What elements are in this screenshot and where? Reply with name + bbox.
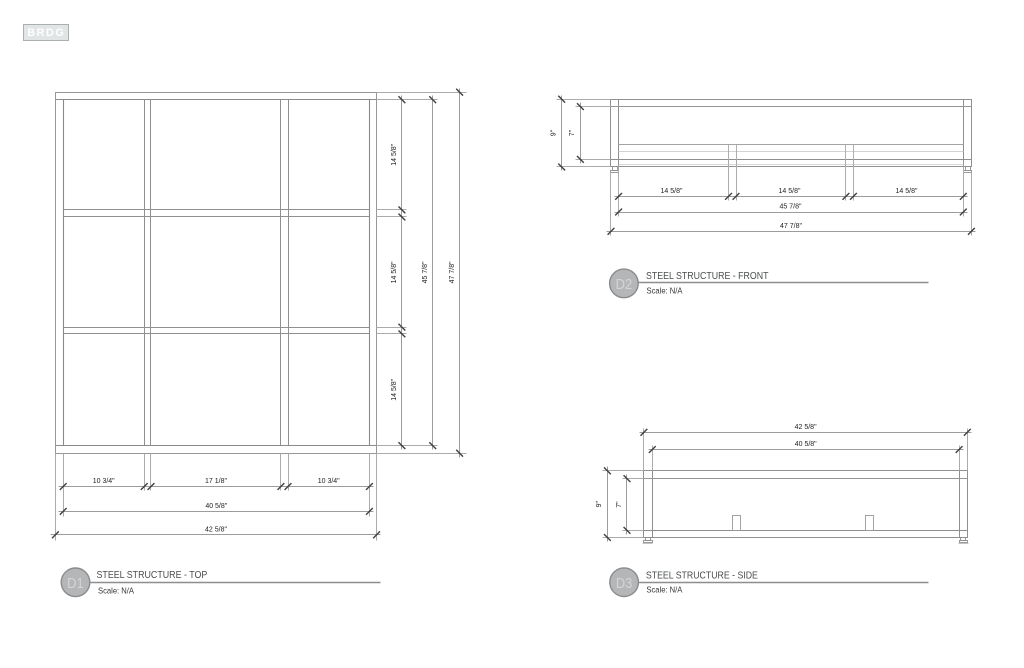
svg-text:17 1/8": 17 1/8" (205, 478, 227, 485)
svg-text:14 5/8": 14 5/8" (391, 378, 398, 400)
svg-text:14 5/8": 14 5/8" (661, 188, 683, 195)
svg-text:45 7/8": 45 7/8" (422, 261, 429, 283)
svg-text:40 5/8": 40 5/8" (795, 441, 817, 448)
svg-text:47 7/8": 47 7/8" (449, 261, 456, 283)
svg-text:42 5/8": 42 5/8" (795, 424, 817, 431)
svg-text:BRDG: BRDG (27, 27, 65, 39)
svg-text:9": 9" (551, 129, 558, 136)
svg-text:42 5/8": 42 5/8" (205, 527, 227, 534)
svg-text:45 7/8": 45 7/8" (780, 204, 802, 211)
svg-text:7": 7" (569, 129, 576, 136)
svg-text:D3: D3 (616, 575, 633, 592)
svg-text:14 5/8": 14 5/8" (391, 261, 398, 283)
svg-text:7": 7" (616, 501, 623, 508)
svg-text:14 5/8": 14 5/8" (391, 143, 398, 165)
svg-text:STEEL STRUCTURE - TOP: STEEL STRUCTURE - TOP (97, 569, 208, 581)
svg-text:10 3/4": 10 3/4" (93, 478, 115, 485)
svg-text:STEEL STRUCTURE - SIDE: STEEL STRUCTURE - SIDE (646, 570, 758, 582)
svg-text:STEEL STRUCTURE - FRONT: STEEL STRUCTURE - FRONT (646, 270, 769, 282)
svg-text:40 5/8": 40 5/8" (205, 503, 227, 510)
svg-text:D2: D2 (616, 276, 633, 293)
svg-text:10 3/4": 10 3/4" (318, 478, 340, 485)
svg-text:Scale: N/A: Scale: N/A (647, 286, 683, 296)
svg-text:9": 9" (596, 501, 603, 508)
svg-text:Scale: N/A: Scale: N/A (646, 585, 682, 595)
svg-text:Scale: N/A: Scale: N/A (98, 586, 134, 596)
svg-text:14 5/8": 14 5/8" (779, 188, 801, 195)
svg-text:D1: D1 (67, 575, 84, 592)
svg-text:47 7/8": 47 7/8" (780, 223, 802, 230)
svg-text:14 5/8": 14 5/8" (896, 188, 918, 195)
